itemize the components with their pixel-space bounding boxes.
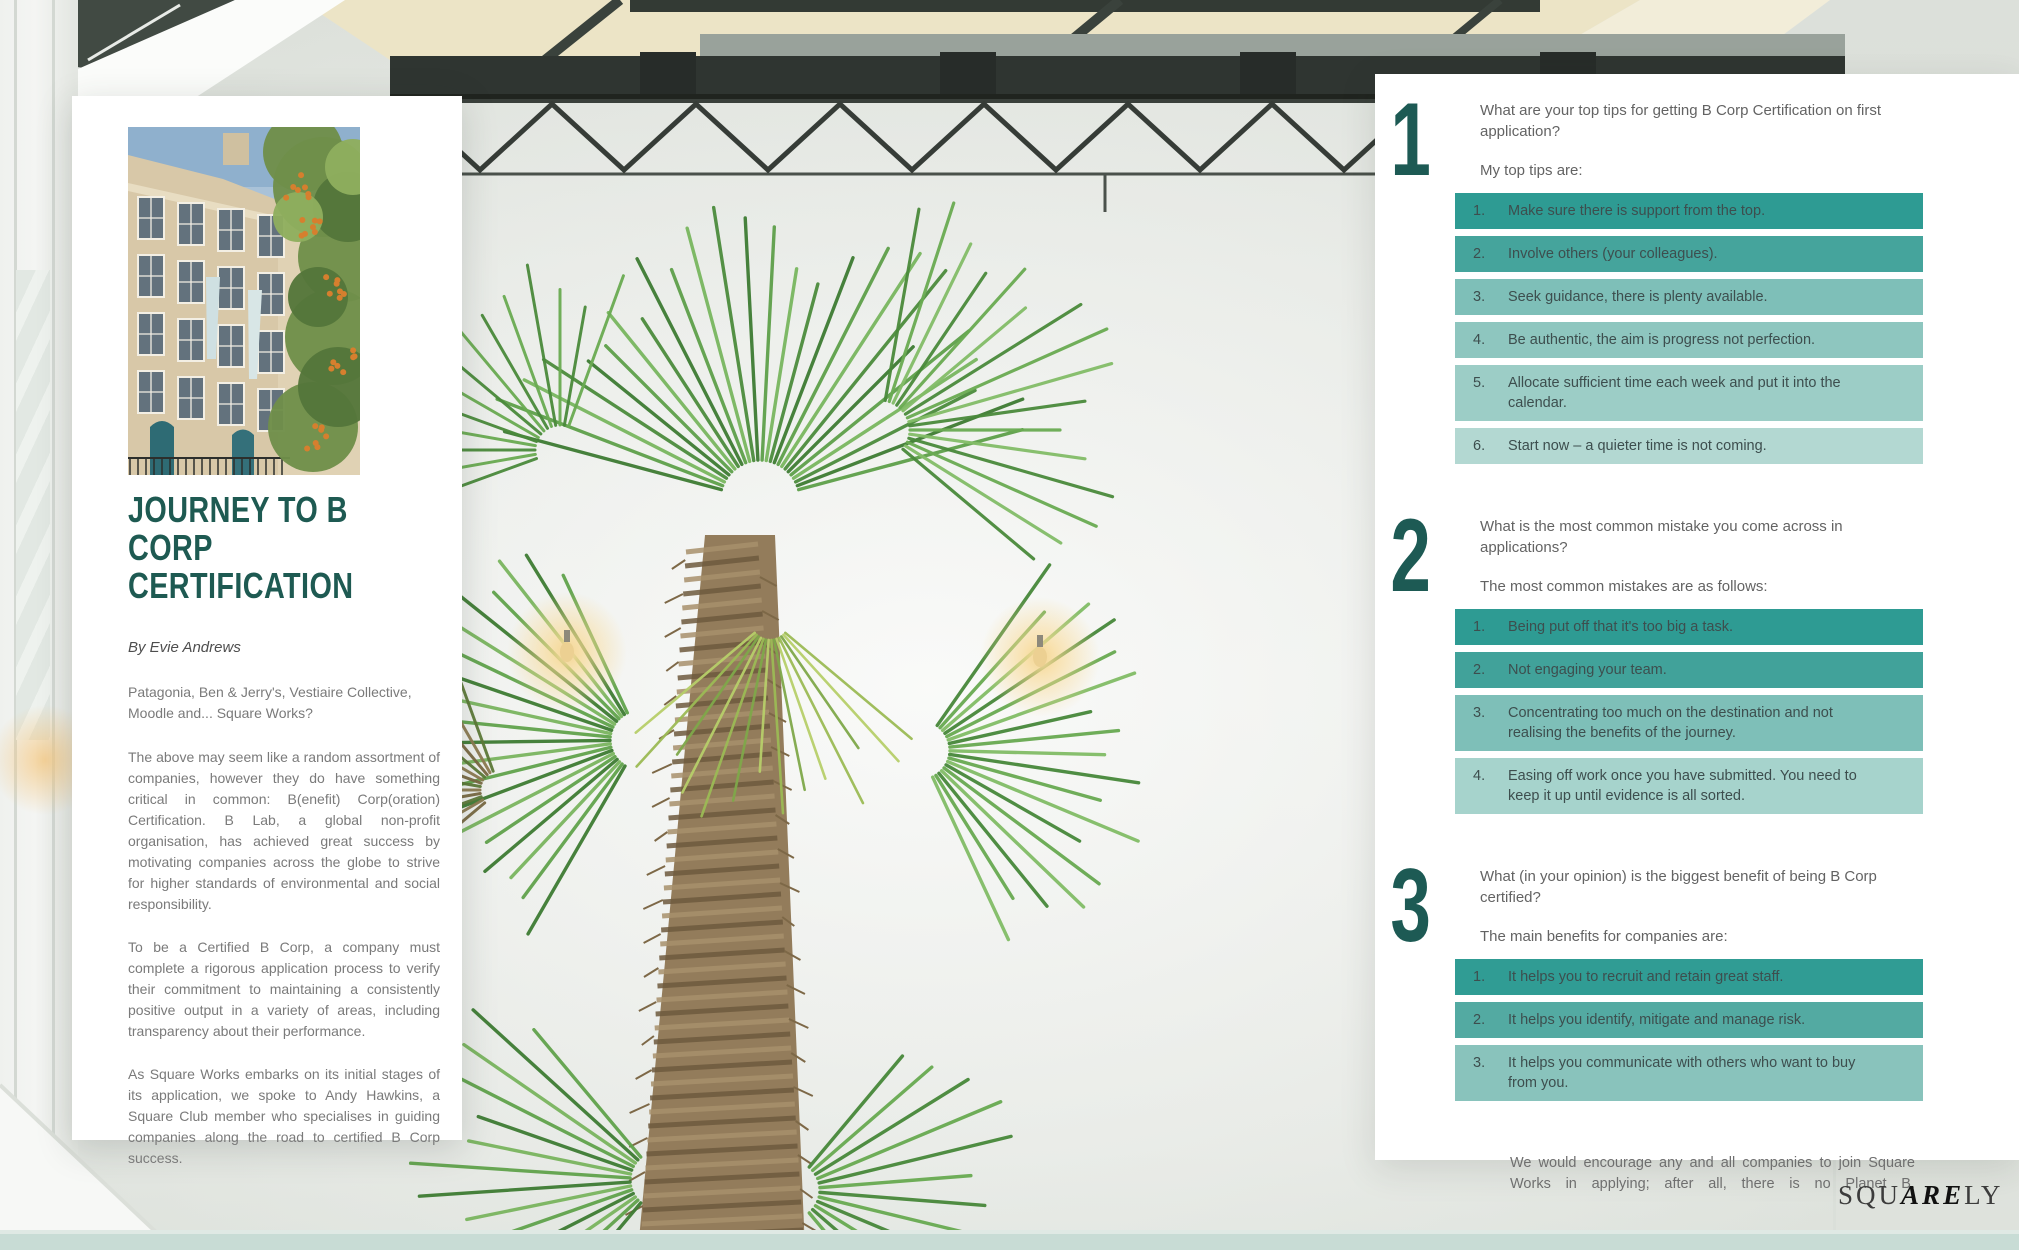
- wall-lamp-left: [560, 642, 574, 662]
- bottom-wall-strip: [0, 1230, 2019, 1250]
- list-item-number: 3.: [1473, 287, 1508, 307]
- article-paragraph: The above may seem like a random assortm…: [128, 747, 440, 915]
- list-item-text: Make sure there is support from the top.: [1508, 201, 1888, 221]
- white-window-frame: [0, 0, 78, 1250]
- list-item-text: Concentrating too much on the destinatio…: [1508, 703, 1888, 743]
- list-item-text: Easing off work once you have submitted.…: [1508, 766, 1888, 806]
- list-item: 3. It helps you communicate with others …: [1455, 1045, 1923, 1101]
- qa-section: 3 What (in your opinion) is the biggest …: [1375, 866, 2019, 1108]
- list-item-text: Start now – a quieter time is not coming…: [1508, 436, 1888, 456]
- window-glass: [16, 270, 50, 740]
- answer-list: 1. Make sure there is support from the t…: [1455, 193, 1923, 464]
- list-item: 4. Be authentic, the aim is progress not…: [1455, 322, 1923, 358]
- list-item-number: 2.: [1473, 1010, 1508, 1030]
- list-item-number: 1.: [1473, 967, 1508, 987]
- list-item-number: 3.: [1473, 703, 1508, 743]
- article-paragraph: As Square Works embarks on its initial s…: [128, 1064, 440, 1169]
- answer-intro: The most common mistakes are as follows:: [1480, 576, 1923, 597]
- question-text: What (in your opinion) is the biggest be…: [1480, 866, 1910, 908]
- list-item-text: It helps you identify, mitigate and mana…: [1508, 1010, 1888, 1030]
- answer-intro: My top tips are:: [1480, 160, 1923, 181]
- list-item: 1. It helps you to recruit and retain gr…: [1455, 959, 1923, 995]
- wall-lamp-right: [1033, 647, 1047, 667]
- list-item-number: 6.: [1473, 436, 1508, 456]
- list-item-text: Being put off that it's too big a task.: [1508, 617, 1888, 637]
- article-paragraph: Patagonia, Ben & Jerry's, Vestiaire Coll…: [128, 682, 440, 724]
- list-item: 1. Being put off that it's too big a tas…: [1455, 609, 1923, 645]
- article-title: JOURNEY TO B CORP CERTIFICATION: [128, 491, 440, 605]
- ridge-bar: [630, 0, 1540, 12]
- list-item-text: Allocate sufficient time each week and p…: [1508, 373, 1888, 413]
- list-item: 6. Start now – a quieter time is not com…: [1455, 428, 1923, 464]
- list-item-text: Involve others (your colleagues).: [1508, 244, 1888, 264]
- squarely-logo: SQUARELY: [1838, 1180, 2003, 1211]
- qa-section: 2 What is the most common mistake you co…: [1375, 516, 2019, 821]
- question-text: What are your top tips for getting B Cor…: [1480, 100, 1910, 142]
- qa-panel: 1 What are your top tips for getting B C…: [1375, 74, 2019, 1160]
- list-item-text: Seek guidance, there is plenty available…: [1508, 287, 1888, 307]
- list-item-number: 1.: [1473, 201, 1508, 221]
- list-item-text: Not engaging your team.: [1508, 660, 1888, 680]
- answer-list: 1. Being put off that it's too big a tas…: [1455, 609, 1923, 814]
- answer-list: 1. It helps you to recruit and retain gr…: [1455, 959, 1923, 1101]
- article-byline: By Evie Andrews: [128, 639, 438, 656]
- newsletter-page: JOURNEY TO B CORP CERTIFICATION By Evie …: [0, 0, 2019, 1250]
- list-item-text: It helps you communicate with others who…: [1508, 1053, 1888, 1093]
- list-item-text: Be authentic, the aim is progress not pe…: [1508, 330, 1888, 350]
- list-item-number: 2.: [1473, 660, 1508, 680]
- list-item-number: 1.: [1473, 617, 1508, 637]
- question-text: What is the most common mistake you come…: [1480, 516, 1910, 558]
- article-paragraph: To be a Certified B Corp, a company must…: [128, 937, 440, 1042]
- street-photo: [128, 127, 360, 475]
- article-card: JOURNEY TO B CORP CERTIFICATION By Evie …: [72, 96, 462, 1140]
- list-item: 1. Make sure there is support from the t…: [1455, 193, 1923, 229]
- list-item: 5. Allocate sufficient time each week an…: [1455, 365, 1923, 421]
- answer-intro: The main benefits for companies are:: [1480, 926, 1923, 947]
- section-number: 1: [1375, 100, 1431, 471]
- list-item: 2. Not engaging your team.: [1455, 652, 1923, 688]
- section-number: 3: [1375, 866, 1431, 1108]
- list-item-number: 4.: [1473, 330, 1508, 350]
- list-item: 2. It helps you identify, mitigate and m…: [1455, 1002, 1923, 1038]
- section-number: 2: [1375, 516, 1431, 821]
- list-item-number: 5.: [1473, 373, 1508, 413]
- qa-section: 1 What are your top tips for getting B C…: [1375, 100, 2019, 471]
- list-item-number: 3.: [1473, 1053, 1508, 1093]
- list-item-number: 4.: [1473, 766, 1508, 806]
- list-item: 3. Concentrating too much on the destina…: [1455, 695, 1923, 751]
- list-item-number: 2.: [1473, 244, 1508, 264]
- list-item: 3. Seek guidance, there is plenty availa…: [1455, 279, 1923, 315]
- list-item-text: It helps you to recruit and retain great…: [1508, 967, 1888, 987]
- list-item: 2. Involve others (your colleagues).: [1455, 236, 1923, 272]
- list-item: 4. Easing off work once you have submitt…: [1455, 758, 1923, 814]
